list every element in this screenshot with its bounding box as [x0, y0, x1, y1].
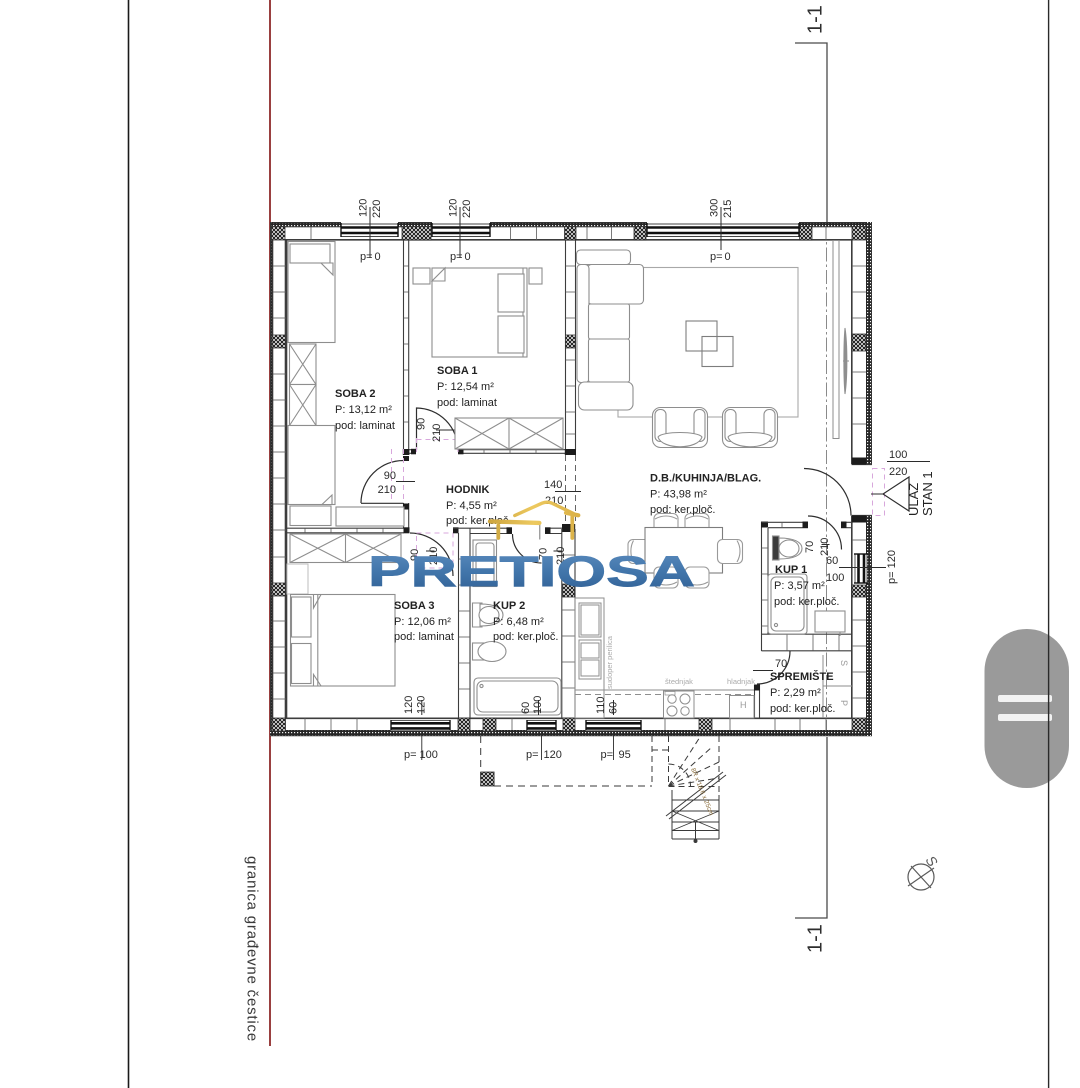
svg-text:pod: laminat: pod: laminat [394, 631, 454, 643]
svg-text:p=: p= [601, 749, 614, 761]
svg-text:p= 120: p= 120 [886, 550, 898, 584]
svg-text:60: 60 [826, 555, 838, 567]
svg-text:120: 120 [544, 749, 562, 761]
svg-text:p=: p= [710, 251, 723, 263]
svg-text:P: 6,48 m²: P: 6,48 m² [493, 616, 544, 628]
svg-text:100: 100 [532, 696, 544, 714]
svg-text:P: 13,12 m²: P: 13,12 m² [335, 404, 392, 416]
svg-text:P: 2,29 m²: P: 2,29 m² [770, 687, 821, 699]
svg-text:P: P [839, 700, 849, 706]
svg-text:100: 100 [420, 749, 438, 761]
svg-text:1-1: 1-1 [805, 924, 827, 953]
svg-text:120: 120 [403, 696, 415, 714]
svg-text:p=: p= [450, 251, 463, 263]
svg-text:pod: laminat: pod: laminat [437, 397, 497, 409]
svg-text:SOBA 2: SOBA 2 [335, 388, 376, 400]
svg-text:sudoper perilica: sudoper perilica [605, 635, 614, 689]
svg-text:100: 100 [826, 572, 844, 584]
svg-text:S: S [839, 660, 849, 666]
svg-text:KUP 1: KUP 1 [775, 564, 807, 576]
svg-text:210: 210 [819, 538, 831, 556]
svg-text:95: 95 [619, 749, 631, 761]
svg-text:1-1: 1-1 [805, 5, 827, 34]
svg-text:90: 90 [416, 418, 428, 430]
svg-text:granica građevne čestice: granica građevne čestice [244, 856, 261, 1042]
svg-text:140: 140 [544, 479, 562, 491]
svg-text:p=: p= [526, 749, 539, 761]
svg-text:pod: ker.ploč.: pod: ker.ploč. [770, 703, 835, 715]
svg-text:KUP 2: KUP 2 [493, 600, 525, 612]
svg-text:120: 120 [358, 199, 370, 217]
svg-text:PRETIOSA: PRETIOSA [368, 547, 695, 595]
svg-text:70: 70 [804, 541, 816, 553]
svg-text:120: 120 [448, 199, 460, 217]
svg-text:70: 70 [775, 658, 787, 670]
svg-text:pod: ker.ploč.: pod: ker.ploč. [493, 631, 558, 643]
svg-text:H: H [740, 700, 747, 710]
svg-text:60: 60 [520, 702, 532, 714]
svg-text:220: 220 [889, 466, 907, 478]
svg-text:SPREMIŠTE: SPREMIŠTE [770, 670, 834, 683]
svg-text:pod: laminat: pod: laminat [335, 420, 395, 432]
svg-text:100: 100 [889, 449, 907, 461]
svg-text:HODNIK: HODNIK [446, 484, 489, 496]
svg-text:p=: p= [360, 251, 373, 263]
svg-text:0: 0 [465, 251, 471, 263]
svg-text:120: 120 [416, 696, 428, 714]
svg-text:STAN 1: STAN 1 [920, 471, 935, 516]
svg-text:P: 3,57 m²: P: 3,57 m² [774, 580, 825, 592]
svg-text:ULAZ: ULAZ [906, 483, 921, 516]
svg-text:p=: p= [404, 749, 417, 761]
svg-text:300: 300 [709, 199, 721, 217]
svg-text:215: 215 [722, 200, 734, 218]
svg-text:D.B./KUHINJA/BLAG.: D.B./KUHINJA/BLAG. [650, 473, 761, 485]
svg-text:60: 60 [608, 702, 620, 714]
svg-text:P: 4,55 m²: P: 4,55 m² [446, 500, 497, 512]
svg-text:220: 220 [371, 200, 383, 218]
svg-text:P: 12,06 m²: P: 12,06 m² [394, 616, 451, 628]
svg-text:P: 12,54 m²: P: 12,54 m² [437, 381, 494, 393]
svg-text:220: 220 [461, 200, 473, 218]
svg-text:SOBA 3: SOBA 3 [394, 600, 435, 612]
svg-text:hladnjak: hladnjak [727, 677, 755, 686]
svg-text:pod: ker.ploč.: pod: ker.ploč. [774, 596, 839, 608]
svg-text:P: 43,98 m²: P: 43,98 m² [650, 489, 707, 501]
svg-text:0: 0 [725, 251, 731, 263]
svg-text:štednjak: štednjak [665, 677, 693, 686]
svg-text:SOBA 1: SOBA 1 [437, 365, 478, 377]
svg-text:210: 210 [431, 424, 443, 442]
svg-text:210: 210 [378, 484, 396, 496]
svg-text:pod: ker.ploč.: pod: ker.ploč. [650, 504, 715, 516]
svg-text:90: 90 [384, 470, 396, 482]
svg-text:0: 0 [375, 251, 381, 263]
svg-text:110: 110 [595, 696, 607, 714]
